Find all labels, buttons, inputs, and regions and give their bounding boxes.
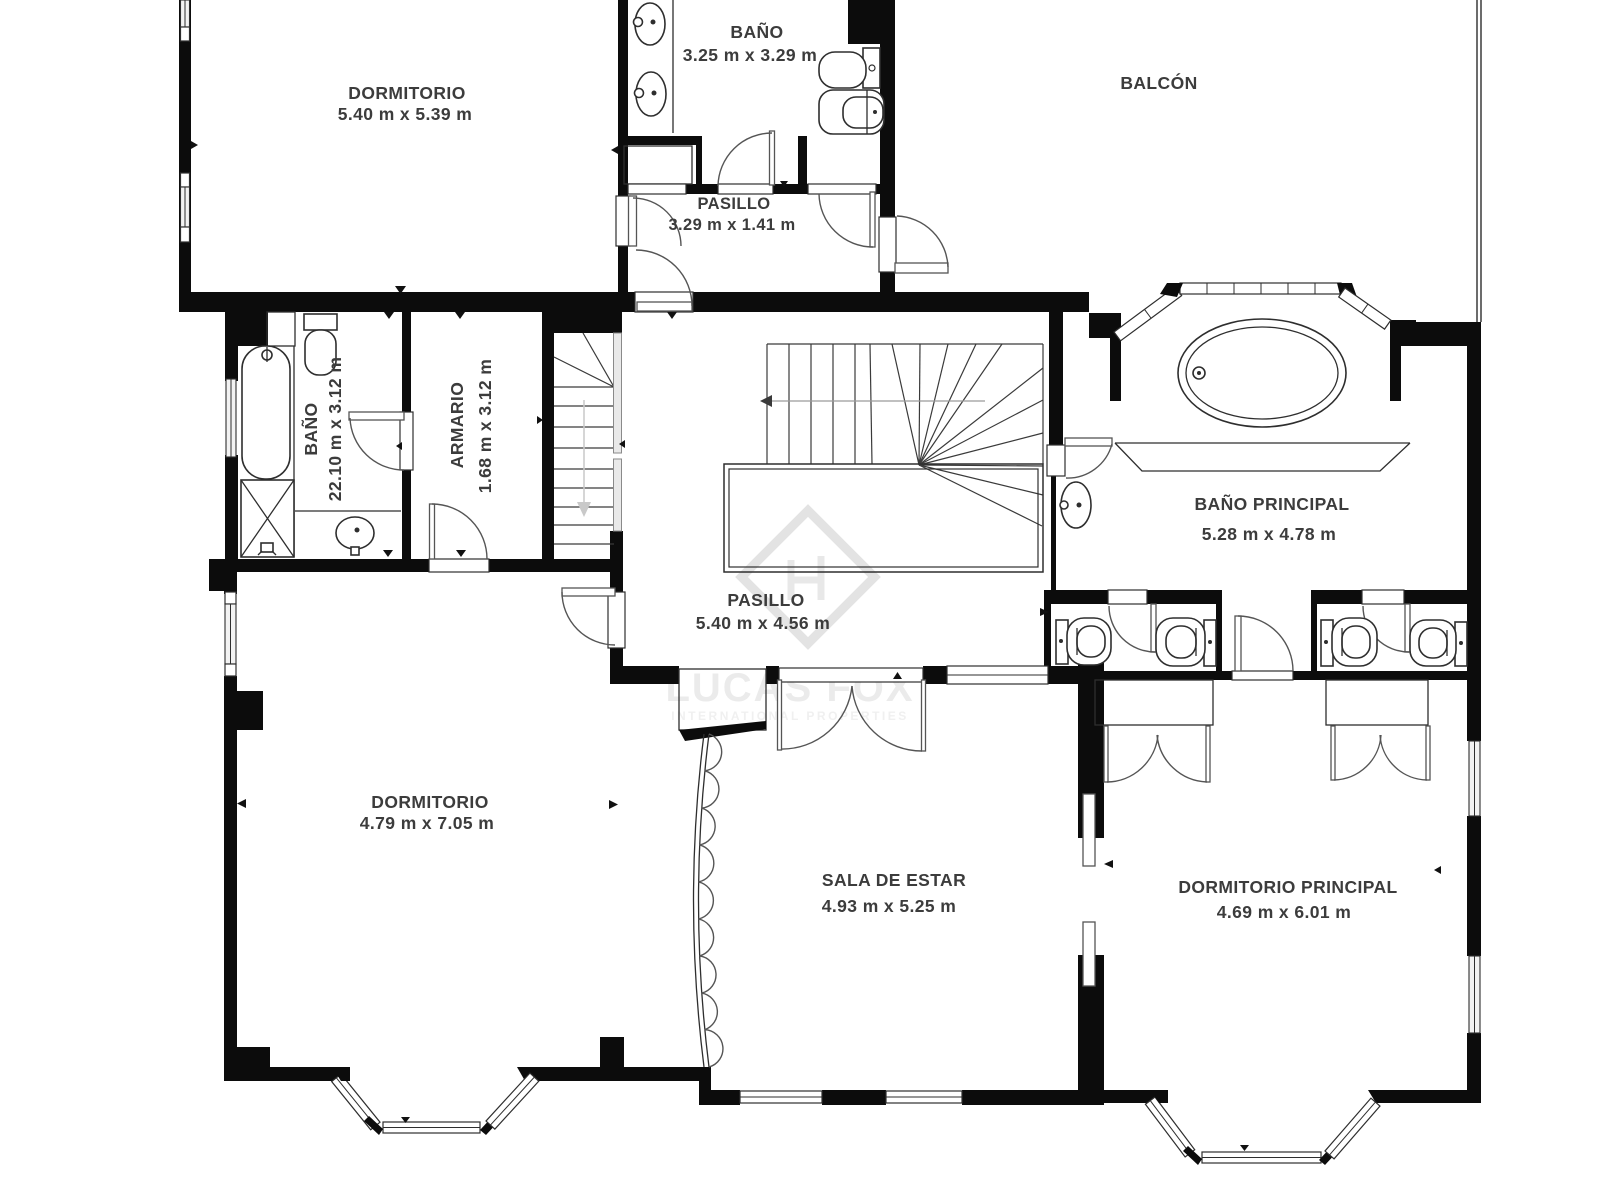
svg-text:SALA DE ESTAR: SALA DE ESTAR [822,870,966,890]
svg-text:DORMITORIO: DORMITORIO [348,83,465,103]
svg-text:4.93 m x 5.25 m: 4.93 m x 5.25 m [822,896,956,916]
svg-text:BAÑO: BAÑO [300,402,321,455]
svg-text:PASILLO: PASILLO [697,195,770,213]
svg-text:22.10 m x 3.12 m: 22.10 m x 3.12 m [325,357,345,502]
svg-text:BALCÓN: BALCÓN [1120,72,1197,93]
svg-text:INTERNATIONAL PROPERTIES: INTERNATIONAL PROPERTIES [671,709,909,723]
svg-text:5.40 m x 4.56 m: 5.40 m x 4.56 m [696,613,830,633]
svg-text:1.68 m x 3.12 m: 1.68 m x 3.12 m [475,359,495,493]
svg-text:DORMITORIO: DORMITORIO [371,792,488,812]
svg-text:BAÑO PRINCIPAL: BAÑO PRINCIPAL [1195,493,1350,514]
svg-text:PASILLO: PASILLO [727,590,804,610]
svg-text:3.29 m x 1.41 m: 3.29 m x 1.41 m [668,216,795,234]
svg-text:5.40 m x 5.39 m: 5.40 m x 5.39 m [338,104,472,124]
svg-text:DORMITORIO PRINCIPAL: DORMITORIO PRINCIPAL [1178,877,1397,897]
svg-text:4.79 m x 7.05 m: 4.79 m x 7.05 m [360,813,494,833]
svg-text:5.28 m x 4.78 m: 5.28 m x 4.78 m [1202,524,1336,544]
svg-text:ARMARIO: ARMARIO [447,382,467,468]
svg-text:BAÑO: BAÑO [730,21,783,42]
svg-text:4.69 m x 6.01 m: 4.69 m x 6.01 m [1217,902,1351,922]
svg-text:3.25 m x 3.29 m: 3.25 m x 3.29 m [683,45,817,65]
